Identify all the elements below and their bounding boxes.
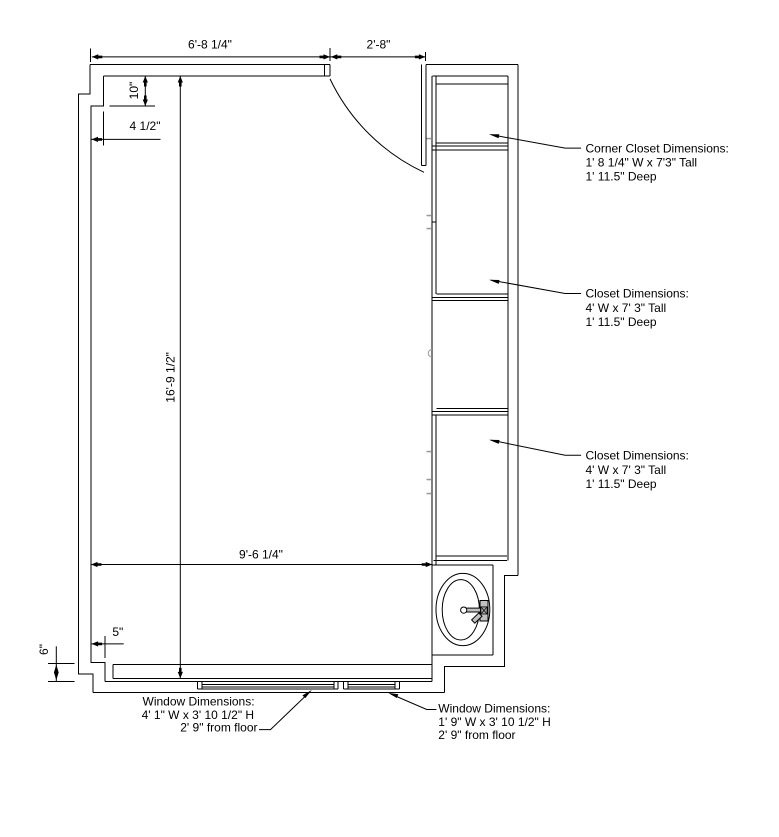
svg-text:2' 9" from floor: 2' 9" from floor	[180, 721, 257, 735]
svg-text:4' W x 7' 3" Tall: 4' W x 7' 3" Tall	[586, 301, 667, 315]
svg-text:1' 11.5" Deep: 1' 11.5" Deep	[586, 170, 657, 184]
svg-text:1' 11.5" Deep: 1' 11.5" Deep	[586, 315, 657, 329]
svg-text:2'-8": 2'-8"	[367, 38, 391, 52]
svg-text:6": 6"	[37, 644, 51, 655]
svg-text:2' 9" from floor: 2' 9" from floor	[438, 728, 515, 742]
svg-text:9'-6 1/4": 9'-6 1/4"	[239, 548, 283, 562]
svg-text:Window Dimensions:: Window Dimensions:	[438, 701, 550, 715]
svg-text:1' 9" W x 3' 10 1/2" H: 1' 9" W x 3' 10 1/2" H	[438, 715, 550, 729]
svg-text:Corner Closet Dimensions:: Corner Closet Dimensions:	[586, 141, 729, 155]
svg-text:Window Dimensions:: Window Dimensions:	[143, 694, 255, 708]
svg-text:1' 8 1/4" W x 7'3" Tall: 1' 8 1/4" W x 7'3" Tall	[586, 156, 698, 170]
svg-text:1' 11.5" Deep: 1' 11.5" Deep	[586, 477, 657, 491]
svg-text:16'-9 1/2": 16'-9 1/2"	[164, 352, 178, 403]
svg-text:Closet Dimensions:: Closet Dimensions:	[586, 287, 689, 301]
svg-text:5": 5"	[112, 625, 123, 639]
svg-text:4' W x 7' 3" Tall: 4' W x 7' 3" Tall	[586, 463, 667, 477]
svg-text:6'-8 1/4": 6'-8 1/4"	[188, 38, 232, 52]
svg-text:4 1/2": 4 1/2"	[130, 119, 161, 133]
svg-text:10": 10"	[127, 82, 141, 100]
svg-text:Closet Dimensions:: Closet Dimensions:	[586, 449, 689, 463]
